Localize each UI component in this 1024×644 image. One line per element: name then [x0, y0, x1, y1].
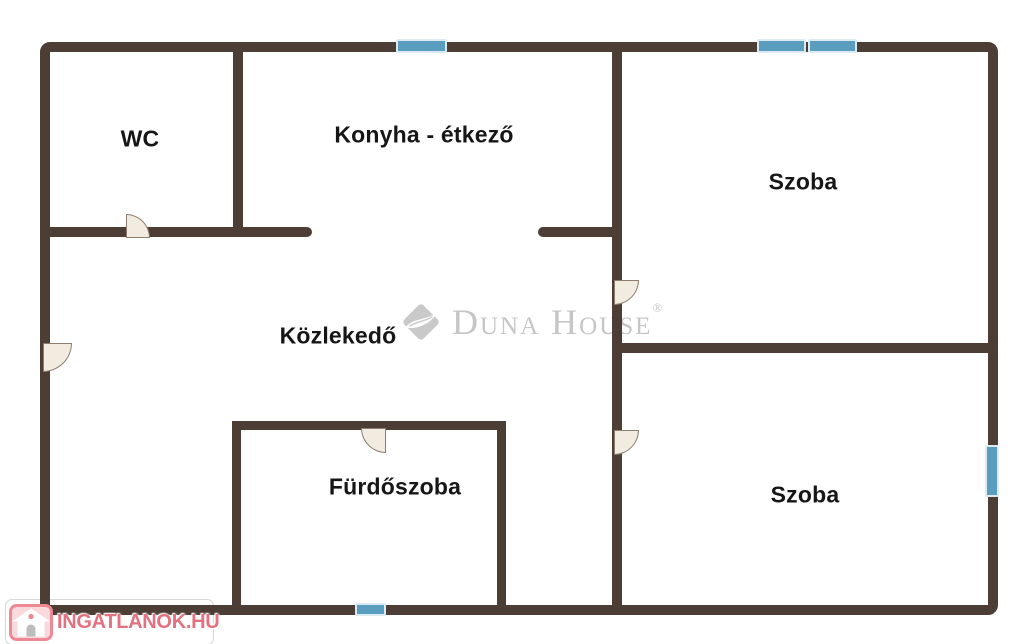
wall-below-wc: [40, 227, 312, 237]
house-icon: [9, 604, 53, 641]
wall-konyha-stub: [538, 227, 622, 237]
window-icon-kitchen: [396, 39, 447, 53]
window-icon-room-top-1: [757, 39, 806, 53]
ingatlanok-logo-text: INGATLANOK.HU: [57, 611, 219, 634]
window-icon-room-right: [985, 445, 999, 497]
window-icon-room-top-2: [808, 39, 857, 53]
wall-bathroom-right: [497, 421, 506, 615]
wall-wc-konyha-divider: [233, 42, 243, 237]
wall-szoba-divider: [622, 343, 998, 353]
room-label-hallway: Közlekedő: [280, 323, 397, 350]
room-label-wc: WC: [121, 126, 160, 153]
room-label-room-top: Szoba: [769, 169, 838, 196]
room-label-room-bottom: Szoba: [771, 482, 840, 509]
room-label-kitchen-dining: Konyha - étkező: [334, 122, 513, 149]
floorplan-canvas: WC Konyha - étkező Szoba Közlekedő Fürdő…: [0, 0, 1024, 644]
wall-bathroom-left: [232, 421, 241, 615]
outer-wall-frame: [40, 42, 998, 615]
wall-central-vertical: [612, 42, 622, 615]
room-label-bathroom: Fürdőszoba: [329, 474, 461, 501]
window-icon-bathroom: [355, 603, 386, 616]
